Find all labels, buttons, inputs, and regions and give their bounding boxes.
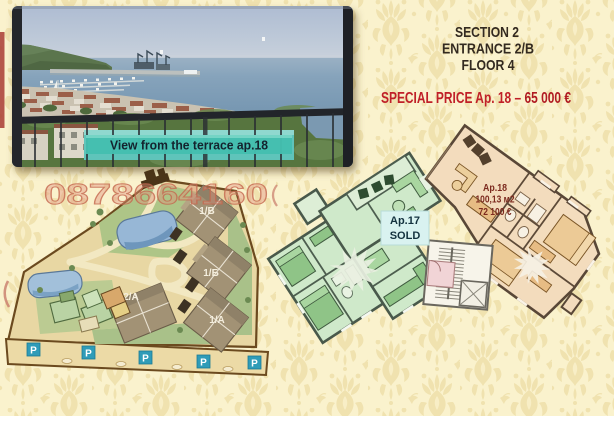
svg-text:SPECIAL PRICE Ap. 18 – 65 000: SPECIAL PRICE Ap. 18 – 65 000 € [381,90,571,107]
svg-text:P: P [142,354,149,365]
svg-text:0878664160: 0878664160 [44,179,268,211]
svg-text:72 100 €: 72 100 € [479,207,512,218]
svg-text:1/А: 1/А [209,315,225,326]
svg-text:SOLD: SOLD [390,230,421,242]
svg-text:FLOOR 4: FLOOR 4 [462,57,516,74]
svg-text:P: P [30,346,37,357]
svg-text:1/Б: 1/Б [203,268,219,279]
svg-text:P: P [251,359,258,370]
svg-text:View from the terrace ap.18: View from the terrace ap.18 [110,139,268,153]
svg-text:SECTION 2: SECTION 2 [455,24,519,41]
svg-text:P: P [200,358,207,369]
svg-text:100,13 м2: 100,13 м2 [476,195,515,206]
svg-text:P: P [85,349,92,360]
svg-text:ENTRANCE 2/B: ENTRANCE 2/B [442,41,534,58]
svg-text:Ap.18: Ap.18 [483,183,507,194]
svg-text:Ap.17: Ap.17 [390,215,420,227]
